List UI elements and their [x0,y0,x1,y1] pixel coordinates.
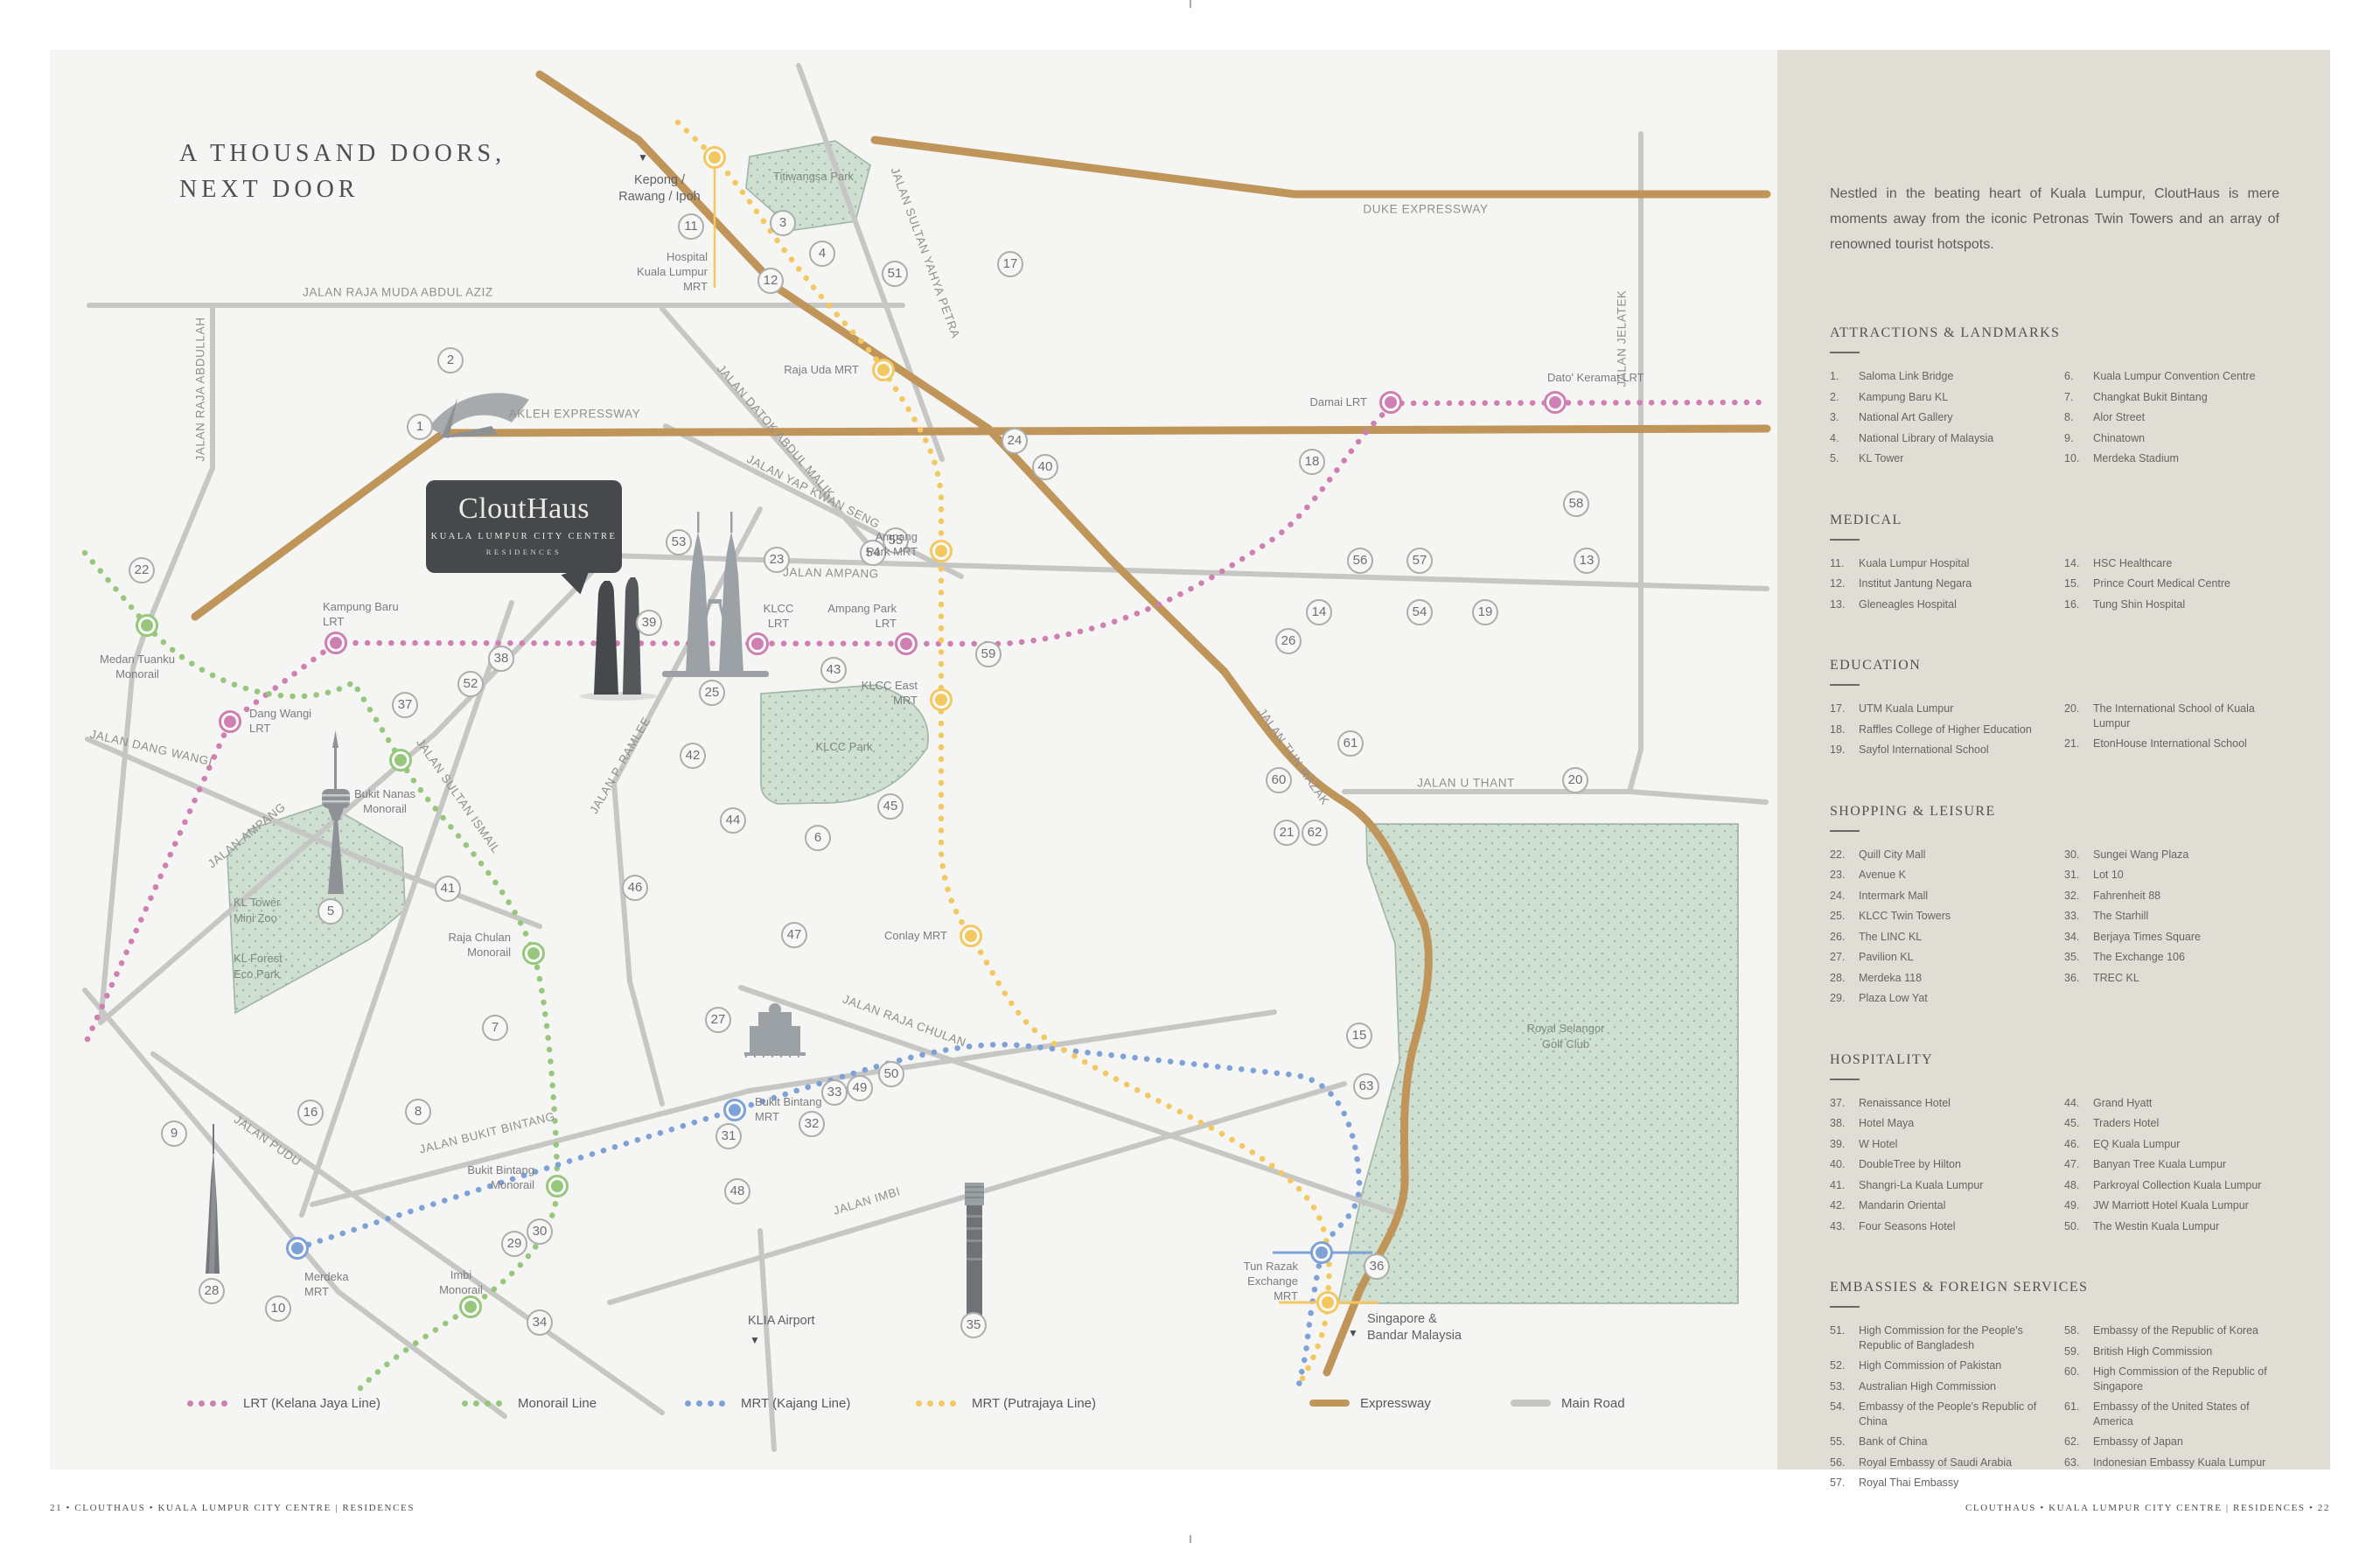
directory-section: HOSPITALITY37.Renaissance Hotel38.Hotel … [1830,1052,2279,1240]
intro-paragraph: Nestled in the beating heart of Kuala Lu… [1830,181,2279,257]
directory-item-number: 34. [2064,930,2079,945]
legend-item: MRT (Kajang Line) [685,1392,850,1414]
station-dot-core [551,1180,563,1192]
map-marker-14: 14 [1306,599,1332,625]
directory-item-number: 17. [1830,702,1845,716]
map-marker-48: 48 [724,1178,750,1204]
directory-heading: EMBASSIES & FOREIGN SERVICES [1830,1280,2279,1295]
directory-column: 37.Renaissance Hotel38.Hotel Maya39.W Ho… [1830,1096,2045,1240]
map-marker-44: 44 [720,807,746,834]
map-marker-23: 23 [764,547,790,573]
page-title-line2: NEXT DOOR [179,171,506,207]
map-marker-33: 33 [821,1079,848,1106]
directory-section: EMBASSIES & FOREIGN SERVICES51.High Comm… [1830,1280,2279,1497]
park-label: KL Tower Mini Zoo [234,895,280,926]
map-marker-57: 57 [1406,548,1433,574]
directory-item-label: Prince Court Medical Centre [2093,577,2230,590]
direction-label: Singapore & Bandar Malaysia [1367,1311,1462,1344]
station-dot [325,632,347,654]
directory-item-number: 26. [1830,930,1845,945]
station-dot [960,925,982,947]
map-marker-17: 17 [997,251,1023,277]
directory-item: 28.Merdeka 118 [1830,971,2045,986]
road-label: JALAN RAJA MUDA ABDUL AZIZ [303,286,493,299]
directory-item-label: Institut Jantung Negara [1859,577,1972,590]
directory-item-number: 12. [1830,576,1845,591]
directory-item-label: The Starhill [2093,910,2148,922]
heading-rule [1830,1306,1860,1308]
legend-swatch-putrajaya [916,1400,961,1407]
directory-item: 9.Chinatown [2064,431,2279,446]
directory-column: 51.High Commission for the People's Repu… [1830,1323,2045,1497]
directory-item: 29.Plaza Low Yat [1830,991,2045,1006]
directory-column: 1.Saloma Link Bridge2.Kampung Baru KL3.N… [1830,369,2045,472]
directory-item: 2.Kampung Baru KL [1830,390,2045,405]
directory-column: 11.Kuala Lumpur Hospital12.Institut Jant… [1830,556,2045,618]
directory-item-number: 21. [2064,737,2079,751]
page-title-line1: A THOUSAND DOORS, [179,136,506,171]
directory-column: 6.Kuala Lumpur Convention Centre7.Changk… [2064,369,2279,472]
map-marker-21: 21 [1274,820,1300,846]
directory-item-label: Chinatown [2093,432,2145,444]
directory-item-number: 10. [2064,451,2079,466]
directory-item: 48.Parkroyal Collection Kuala Lumpur [2064,1178,2279,1193]
directory-item: 51.High Commission for the People's Repu… [1830,1323,2045,1352]
road-label: JALAN TUN RAZAK [1255,706,1331,807]
map-marker-51: 51 [882,261,908,287]
directory-item-number: 40. [1830,1157,1845,1172]
directory-item-label: Merdeka 118 [1859,972,1922,984]
station-dot-core [935,694,947,706]
station-dot [546,1175,569,1197]
map-marker-62: 62 [1302,820,1328,846]
legend-label: Expressway [1360,1396,1431,1411]
road-label: JALAN DANG WANGI [88,728,213,769]
map-marker-8: 8 [405,1099,431,1125]
directory-item: 21.EtonHouse International School [2064,737,2279,751]
directory-section: MEDICAL11.Kuala Lumpur Hospital12.Instit… [1830,513,2279,618]
directory-item-label: Kampung Baru KL [1859,391,1948,403]
footer-left: 21 • CLOUTHAUS • KUALA LUMPUR CITY CENTR… [50,1503,415,1513]
directory-item: 15.Prince Court Medical Centre [2064,576,2279,591]
directory-item-label: Berjaya Times Square [2093,931,2201,943]
directory-item-label: KL Tower [1859,452,1903,464]
directory-item-number: 9. [2064,431,2073,446]
station-dot-core [141,619,153,632]
directory-item-number: 59. [2064,1344,2079,1359]
road-label: DUKE EXPRESSWAY [1363,203,1488,216]
map-marker-43: 43 [820,657,847,683]
directory-item: 41.Shangri-La Kuala Lumpur [1830,1178,2045,1193]
directory-item: 35.The Exchange 106 [2064,950,2279,965]
map-marker-37: 37 [392,692,418,718]
legend-item: MRT (Putrajaya Line) [916,1392,1096,1414]
station-dot [895,632,918,655]
park-label: Royal Selangor Golf Club [1527,1021,1605,1052]
directory-item-label: Saloma Link Bridge [1859,370,1953,382]
directory-item: 56.Royal Embassy of Saudi Arabia [1830,1456,2045,1470]
directory-item-label: Tung Shin Hospital [2093,598,2185,611]
directory-item-number: 62. [2064,1435,2079,1449]
directory-item-number: 37. [1830,1096,1845,1111]
directory-item-number: 32. [2064,889,2079,904]
directory-item-label: The LINC KL [1859,931,1922,943]
directory-column: 58.Embassy of the Republic of Korea59.Br… [2064,1323,2279,1497]
road-label: JALAN AMPANG [206,800,289,871]
directory-item: 52.High Commission of Pakistan [1830,1358,2045,1373]
station-dot [1544,391,1567,414]
heading-rule [1830,830,1860,832]
clouthaus-callout: CloutHaus KUALA LUMPUR CITY CENTRE RESID… [426,480,622,573]
directory-heading: EDUCATION [1830,658,2279,674]
map-overlay: JALAN RAJA MUDA ABDUL AZIZJALAN RAJA ABD… [50,50,1777,1470]
directory-item-label: Fahrenheit 88 [2093,890,2160,902]
station-label: Ampang Park LRT [827,601,897,631]
map-marker-11: 11 [678,213,704,240]
station-label: Damai LRT [1309,394,1367,409]
road-label: JALAN RAJA CHULAN [841,992,967,1049]
directory-item-label: Bank of China [1859,1435,1928,1448]
directory-item-number: 15. [2064,576,2079,591]
directory-item: 62.Embassy of Japan [2064,1435,2279,1449]
directory-item: 42.Mandarin Oriental [1830,1198,2045,1213]
station-dot-core [464,1301,477,1313]
station-dot-core [751,638,764,650]
directory-columns: 22.Quill City Mall23.Avenue K24.Intermar… [1830,848,2279,1012]
map-marker-31: 31 [715,1123,742,1149]
directory-item-number: 36. [2064,971,2079,986]
station-label: Medan Tuanku Monorail [100,652,175,681]
directory-item: 37.Renaissance Hotel [1830,1096,2045,1111]
station-label: KLCC East MRT [862,678,918,708]
map-marker-24: 24 [1002,428,1028,454]
directory-item: 32.Fahrenheit 88 [2064,889,2279,904]
directory-item-label: Royal Embassy of Saudi Arabia [1859,1456,2012,1469]
directory-item-number: 1. [1830,369,1839,384]
map-marker-13: 13 [1574,548,1600,574]
station-label: Imbi Monorail [439,1267,483,1297]
directory-item-label: Royal Thai Embassy [1859,1477,1958,1489]
directory-item: 57.Royal Thai Embassy [1830,1476,2045,1491]
map-marker-47: 47 [781,922,807,948]
map-marker-50: 50 [878,1061,904,1087]
directory-item-number: 20. [2064,702,2079,716]
heading-rule [1830,539,1860,541]
directory-item: 33.The Starhill [2064,909,2279,924]
directory-item-label: KLCC Twin Towers [1859,910,1951,922]
directory-section: SHOPPING & LEISURE22.Quill City Mall23.A… [1830,804,2279,1012]
directory-item: 49.JW Marriott Hotel Kuala Lumpur [2064,1198,2279,1213]
directory-item: 45.Traders Hotel [2064,1116,2279,1131]
directory-item: 24.Intermark Mall [1830,889,2045,904]
directory-item-number: 61. [2064,1400,2079,1414]
directory-item-label: Traders Hotel [2093,1117,2159,1129]
directory-item-label: Pavilion KL [1859,951,1914,963]
directory-item-label: The Westin Kuala Lumpur [2093,1220,2219,1232]
directory-item-number: 60. [2064,1365,2079,1379]
directory-item-label: Embassy of the United States of America [2093,1400,2250,1428]
map-marker-58: 58 [1563,491,1589,517]
directory-item-label: High Commission of Pakistan [1859,1359,2001,1372]
station-label: Bukit Bintang Monorail [467,1162,534,1192]
directory-item-number: 46. [2064,1137,2079,1152]
directory-item-number: 41. [1830,1178,1845,1193]
direction-arrow-icon: ▼ [750,1334,760,1346]
directory-column: 22.Quill City Mall23.Avenue K24.Intermar… [1830,848,2045,1012]
road-label: JALAN U THANT [1417,777,1515,790]
directory-item-number: 8. [2064,410,2073,425]
directory-item-number: 39. [1830,1137,1845,1152]
station-dot-core [291,1242,304,1254]
legend-item: Monorail Line [462,1392,597,1414]
directory-column: 30.Sungei Wang Plaza31.Lot 1032.Fahrenhe… [2064,848,2279,1012]
station-dot-core [708,151,721,164]
directory-item: 40.DoubleTree by Hilton [1830,1157,2045,1172]
directory-item-label: Four Seasons Hotel [1859,1220,1955,1232]
directory-item-number: 24. [1830,889,1845,904]
legend-item: Main Road [1511,1392,1625,1414]
directory-item-number: 3. [1830,410,1839,425]
map-marker-1: 1 [407,414,433,440]
station-label: Raja Chulan Monorail [448,930,511,960]
directory-item-label: National Library of Malaysia [1859,432,1993,444]
directory-item: 36.TREC KL [2064,971,2279,986]
station-label: Bukit Bintang MRT [755,1094,822,1124]
directory-item-label: Sungei Wang Plaza [2093,848,2188,861]
station-dot-core [1316,1246,1328,1259]
directory-item-number: 5. [1830,451,1839,466]
directory-item-label: Merdeka Stadium [2093,452,2179,464]
directory-item-label: HSC Healthcare [2093,557,2172,569]
directory-item-number: 57. [1830,1476,1845,1491]
directory-item-label: The International School of Kuala Lumpur [2093,702,2255,730]
directory-column: 44.Grand Hyatt45.Traders Hotel46.EQ Kual… [2064,1096,2279,1240]
directory-item-label: Sayfol International School [1859,744,1989,756]
map-marker-63: 63 [1353,1073,1379,1100]
directory-item-label: British High Commission [2093,1345,2212,1358]
directory-item-number: 14. [2064,556,2079,571]
directory-item-number: 2. [1830,390,1839,405]
directory-item-label: Quill City Mall [1859,848,1925,861]
directory-item-label: Plaza Low Yat [1859,992,1928,1004]
road-label: JALAN RAJA ABDULLAH [194,317,207,461]
station-dot [1310,1241,1333,1264]
directory-item: 7.Changkat Bukit Bintang [2064,390,2279,405]
station-dot-core [965,930,977,942]
directory-item: 12.Institut Jantung Negara [1830,576,2045,591]
directory-item-number: 58. [2064,1323,2079,1338]
directory-item: 39.W Hotel [1830,1137,2045,1152]
directory-item-label: Mandarin Oriental [1859,1199,1945,1211]
directory-columns: 37.Renaissance Hotel38.Hotel Maya39.W Ho… [1830,1096,2279,1240]
station-dot [746,632,769,655]
directory-item: 50.The Westin Kuala Lumpur [2064,1219,2279,1234]
directory-item: 44.Grand Hyatt [2064,1096,2279,1111]
directory-columns: 1.Saloma Link Bridge2.Kampung Baru KL3.N… [1830,369,2279,472]
directory-item-label: EtonHouse International School [2093,737,2247,750]
directory-item-number: 52. [1830,1358,1845,1373]
map-marker-18: 18 [1299,449,1325,475]
directory-columns: 17.UTM Kuala Lumpur18.Raffles College of… [1830,702,2279,764]
map-marker-36: 36 [1364,1253,1390,1280]
legend-item: LRT (Kelana Jaya Line) [187,1392,380,1414]
directory-item-number: 23. [1830,868,1845,883]
callout-subtitle: KUALA LUMPUR CITY CENTRE [426,532,622,541]
map-marker-29: 29 [501,1231,527,1257]
directory-item: 22.Quill City Mall [1830,848,2045,862]
map-marker-52: 52 [457,671,484,697]
map-marker-12: 12 [757,268,784,294]
directory-item: 27.Pavilion KL [1830,950,2045,965]
map-marker-4: 4 [809,241,835,267]
map-marker-28: 28 [199,1278,225,1304]
directory-item: 14.HSC Healthcare [2064,556,2279,571]
map-marker-6: 6 [805,825,831,851]
directory-item-label: Changkat Bukit Bintang [2093,391,2208,403]
station-label: Bukit Nanas Monorail [354,786,415,816]
map-marker-22: 22 [129,557,155,583]
map-marker-45: 45 [877,793,904,820]
map-marker-3: 3 [770,210,796,236]
directory-item: 38.Hotel Maya [1830,1116,2045,1131]
station-label: KLCC LRT [764,601,794,631]
station-dot-core [900,638,912,650]
directory-item-number: 29. [1830,991,1845,1006]
map-marker-34: 34 [527,1309,553,1336]
directory-item-number: 13. [1830,597,1845,612]
station-dot [930,540,953,562]
map-marker-41: 41 [435,876,461,902]
direction-arrow-icon: ▼ [1348,1327,1358,1339]
directory-item-label: Avenue K [1859,869,1906,881]
directory-columns: 11.Kuala Lumpur Hospital12.Institut Jant… [1830,556,2279,618]
station-label: Conlay MRT [884,928,947,943]
station-dot [930,688,953,711]
directory-item-label: National Art Gallery [1859,411,1953,423]
direction-arrow-icon: ▼ [638,151,648,164]
directory-item-label: High Commission of the Republic of Singa… [2093,1365,2267,1393]
directory-item-number: 51. [1830,1323,1845,1338]
station-dot-core [1322,1296,1334,1309]
station-label: Merdeka MRT [304,1269,349,1299]
directory-section: ATTRACTIONS & LANDMARKS1.Saloma Link Bri… [1830,325,2279,472]
station-dot [723,1099,746,1121]
road-label: JALAN PUDU [232,1113,304,1169]
directory-item: 54.Embassy of the People's Republic of C… [1830,1400,2045,1428]
direction-label: Kepong / Rawang / Ipoh [618,172,701,206]
directory-item-label: TREC KL [2093,972,2139,984]
map-marker-9: 9 [161,1121,187,1147]
directory-item-label: Kuala Lumpur Hospital [1859,557,1969,569]
legend-label: Monorail Line [518,1396,597,1411]
directory-column: 17.UTM Kuala Lumpur18.Raffles College of… [1830,702,2045,764]
heading-rule [1830,352,1860,353]
callout-residences: RESIDENCES [426,548,622,556]
station-label: Hospital Kuala Lumpur MRT [637,249,708,294]
directory-heading: SHOPPING & LEISURE [1830,804,2279,820]
directory-item-label: Alor Street [2093,411,2145,423]
heading-rule [1830,1079,1860,1080]
directory-item-number: 43. [1830,1219,1845,1234]
directory-item-number: 28. [1830,971,1845,986]
directory-item-number: 49. [2064,1198,2079,1213]
directory-item-number: 22. [1830,848,1845,862]
directory-item-number: 44. [2064,1096,2079,1111]
map-marker-26: 26 [1275,628,1302,654]
directory-item-number: 11. [1830,556,1844,571]
road-label: JALAN SULTAN YAHYA PETRA [889,165,963,339]
directory-item: 13.Gleneagles Hospital [1830,597,2045,612]
map-marker-42: 42 [680,743,706,769]
directory-item-number: 38. [1830,1116,1845,1131]
callout-brand: CloutHaus [426,492,622,526]
directory-item-label: Raffles College of Higher Education [1859,723,2032,736]
legend-swatch-kajang [685,1400,730,1407]
map-marker-54: 54 [1406,599,1433,625]
map-marker-53: 53 [666,529,692,555]
road-label: JALAN P. RAMLEE [587,715,653,816]
map-marker-56: 56 [1347,548,1373,574]
directory-item-number: 27. [1830,950,1845,965]
map-marker-25: 25 [699,680,725,706]
road-label: JALAN SULTAN ISMAIL [414,737,503,856]
directory-item-label: W Hotel [1859,1138,1897,1150]
directory-item-label: Grand Hyatt [2093,1097,2152,1109]
station-dot-core [330,637,342,649]
map-marker-2: 2 [437,347,464,374]
directory-item: 25.KLCC Twin Towers [1830,909,2045,924]
station-dot-core [527,947,540,960]
map-marker-30: 30 [527,1218,553,1245]
directory-column: 20.The International School of Kuala Lum… [2064,702,2279,764]
directory-item: 31.Lot 10 [2064,868,2279,883]
directory-item-label: UTM Kuala Lumpur [1859,702,1953,715]
directory-item: 34.Berjaya Times Square [2064,930,2279,945]
directory-item-number: 19. [1830,743,1845,758]
map-marker-5: 5 [318,898,344,925]
directory-item: 43.Four Seasons Hotel [1830,1219,2045,1234]
park-label: KLCC Park [815,739,872,755]
directory-item: 5.KL Tower [1830,451,2045,466]
directory-item-number: 35. [2064,950,2079,965]
legend-swatch-expressway [1309,1400,1350,1407]
legend-swatch-monorail [462,1400,507,1407]
directory-heading: MEDICAL [1830,513,2279,528]
directory-item: 8.Alor Street [2064,410,2279,425]
directory-item: 55.Bank of China [1830,1435,2045,1449]
directory-item-number: 25. [1830,909,1845,924]
directory-item-label: DoubleTree by Hilton [1859,1158,1961,1170]
road-label: JALAN IMBI [832,1184,902,1218]
map-marker-15: 15 [1346,1023,1372,1049]
map-marker-20: 20 [1562,767,1588,793]
station-label: Tun Razak Exchange MRT [1244,1259,1298,1303]
map-marker-39: 39 [636,610,662,636]
road-label: AKLEH EXPRESSWAY [509,408,641,421]
directory-item-number: 33. [2064,909,2079,924]
directory-item-number: 4. [1830,431,1839,446]
directory-item: 47.Banyan Tree Kuala Lumpur [2064,1157,2279,1172]
directory-item-label: JW Marriott Hotel Kuala Lumpur [2093,1199,2249,1211]
directory-item-label: Hotel Maya [1859,1117,1914,1129]
station-dot-core [1549,396,1561,408]
directory-item-number: 16. [2064,597,2079,612]
station-dot-core [729,1104,741,1116]
directory-item: 3.National Art Gallery [1830,410,2045,425]
directory-item-label: The Exchange 106 [2093,951,2185,963]
directory-item: 18.Raffles College of Higher Education [1830,723,2045,737]
directory: ATTRACTIONS & LANDMARKS1.Saloma Link Bri… [1830,325,2279,1497]
